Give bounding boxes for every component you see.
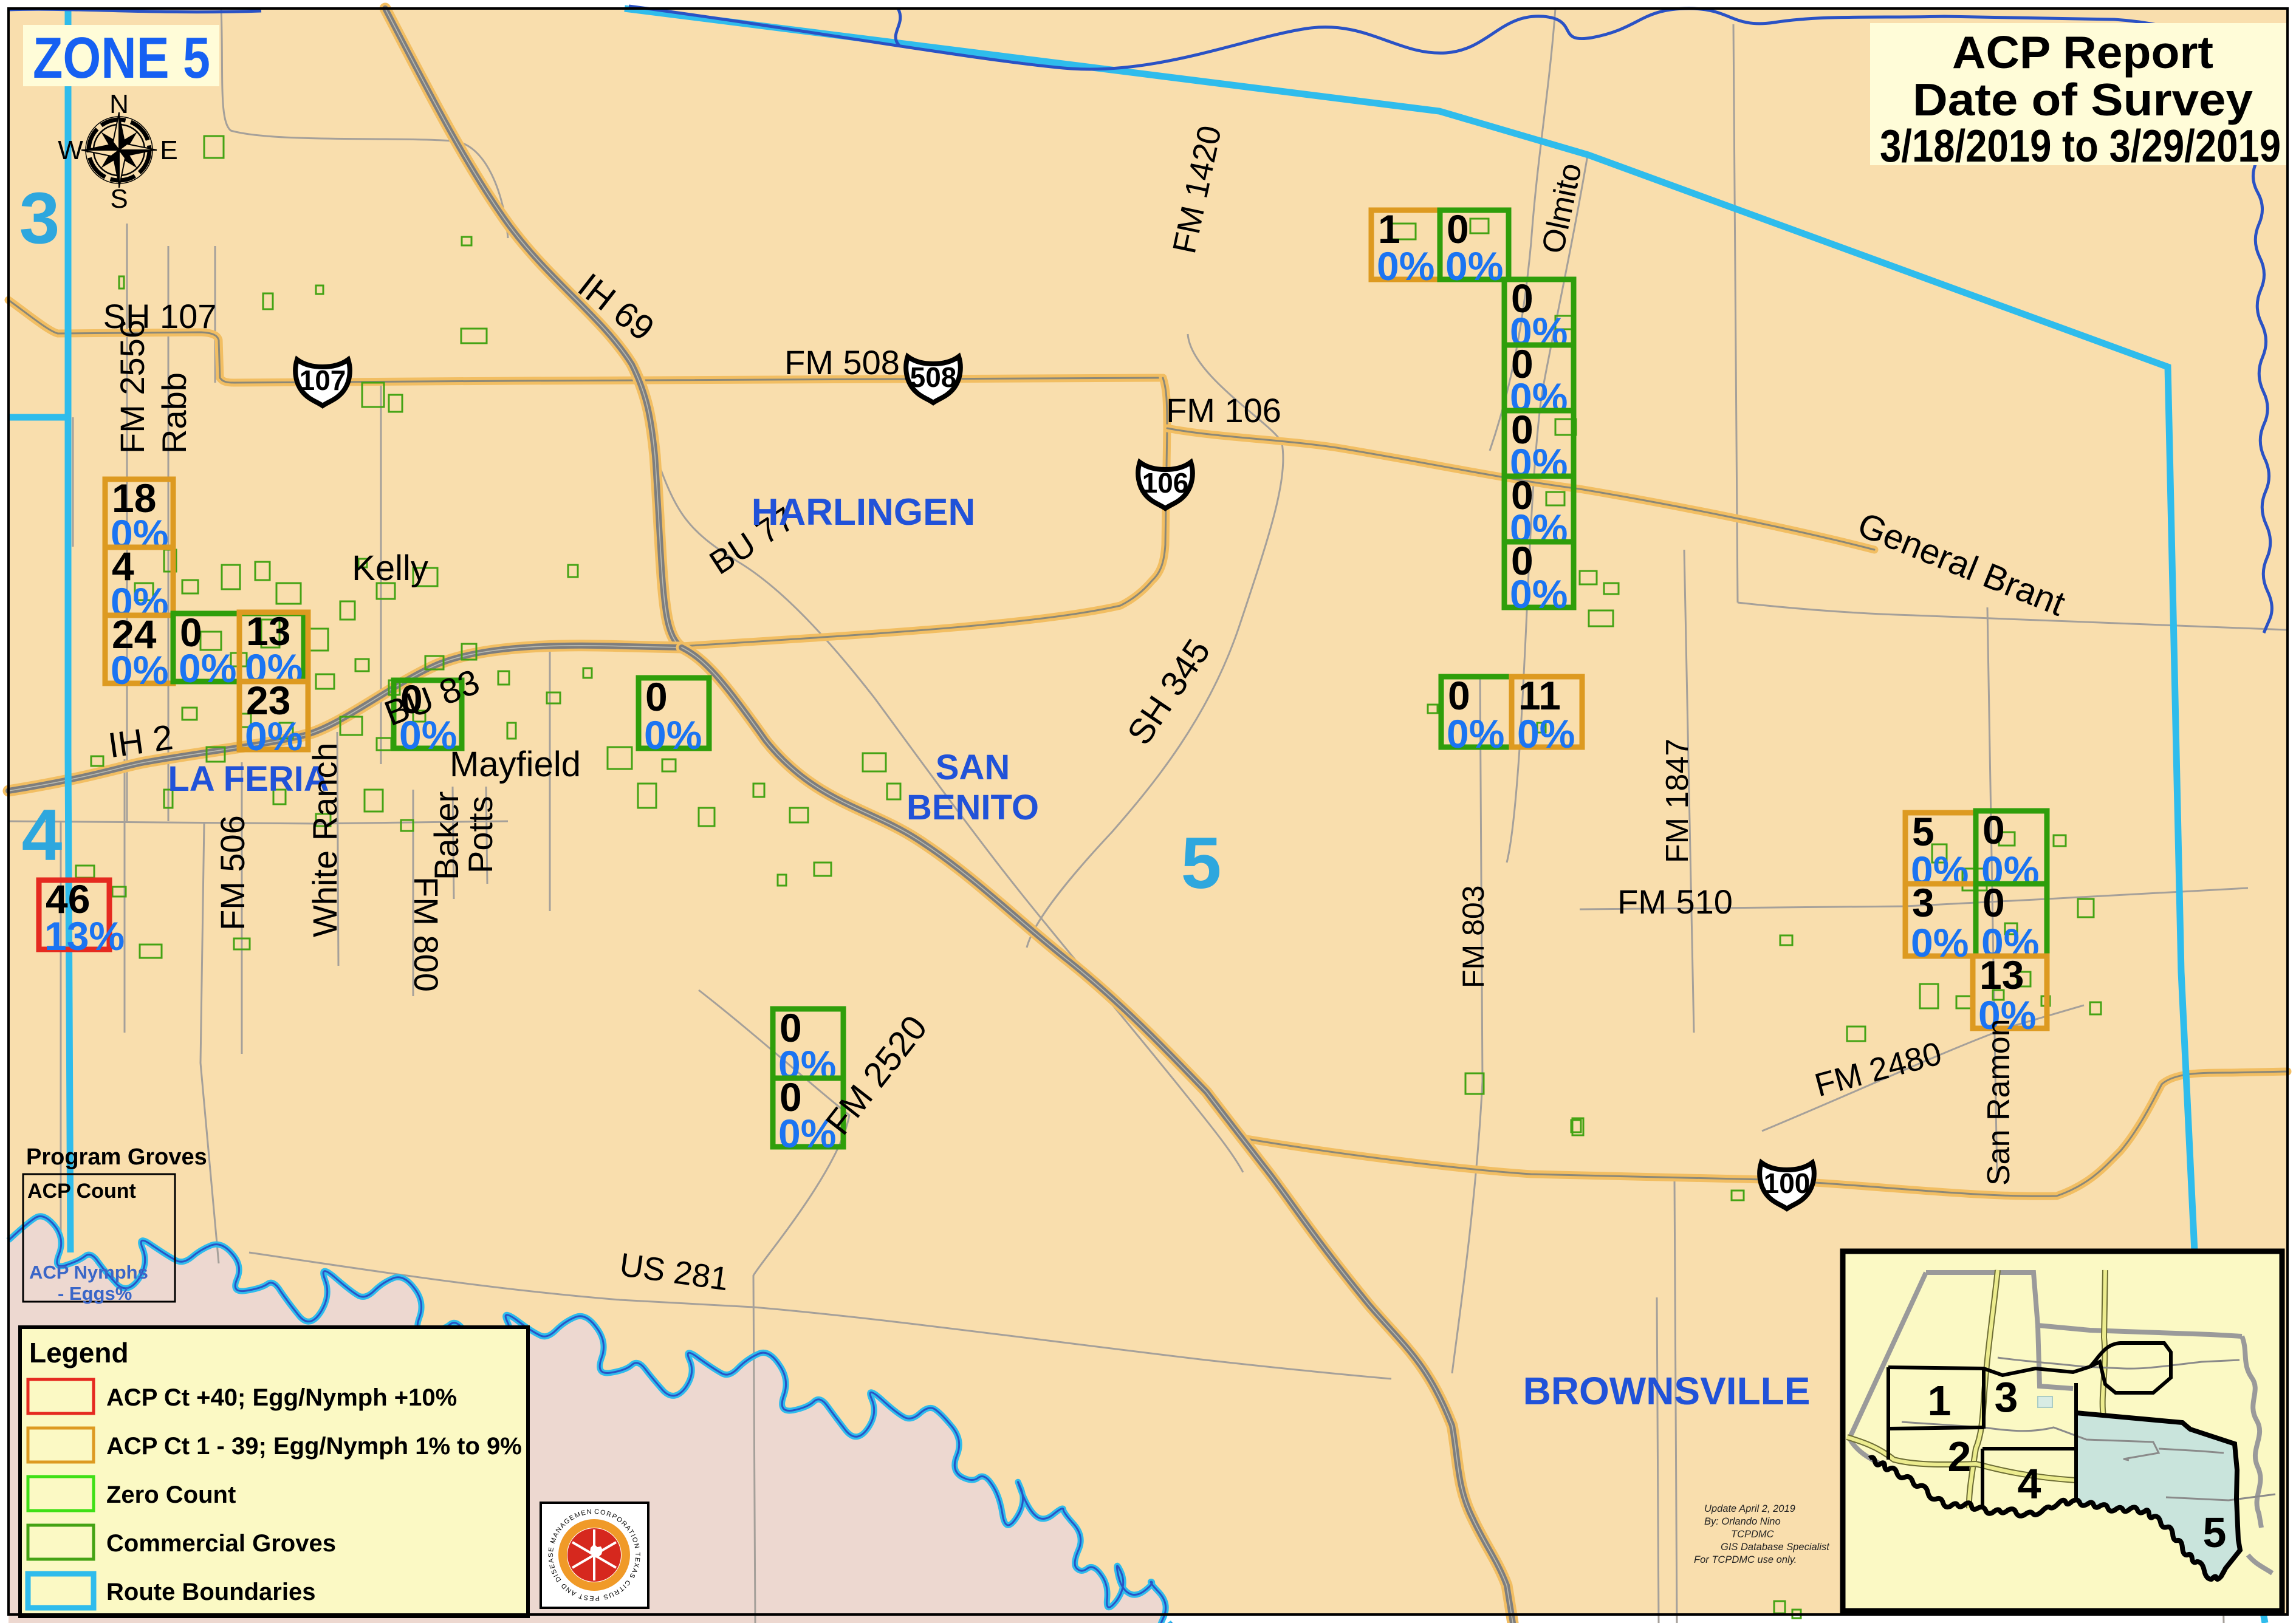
svg-text:FM 510: FM 510 xyxy=(1617,883,1733,921)
svg-text:0: 0 xyxy=(1982,880,2005,925)
svg-text:E: E xyxy=(160,135,177,165)
svg-text:HARLINGEN: HARLINGEN xyxy=(752,491,976,533)
svg-text:ZONE 5: ZONE 5 xyxy=(33,26,210,91)
svg-text:Route Boundaries: Route Boundaries xyxy=(106,1579,315,1605)
svg-text:0%: 0% xyxy=(1445,244,1503,289)
svg-text:0%: 0% xyxy=(644,712,702,757)
svg-text:FM 506: FM 506 xyxy=(213,815,252,931)
svg-text:4: 4 xyxy=(22,794,63,876)
svg-text:Baker: Baker xyxy=(427,791,465,880)
svg-text:3: 3 xyxy=(1912,880,1934,925)
svg-text:0: 0 xyxy=(1982,807,2005,852)
svg-text:Program Groves: Program Groves xyxy=(26,1144,207,1170)
svg-text:Zero Count: Zero Count xyxy=(106,1481,236,1508)
svg-text:N: N xyxy=(109,89,129,119)
svg-text:5: 5 xyxy=(2203,1509,2227,1556)
svg-text:Update April 2, 2019: Update April 2, 2019 xyxy=(1704,1503,1795,1514)
svg-text:ACP Report: ACP Report xyxy=(1952,27,2213,78)
svg-text:GIS Database Specialist: GIS Database Specialist xyxy=(1721,1542,1830,1553)
svg-text:0%: 0% xyxy=(111,647,168,692)
svg-text:3: 3 xyxy=(1995,1373,2018,1421)
svg-text:3: 3 xyxy=(19,177,60,259)
svg-text:0%: 0% xyxy=(1510,572,1568,617)
svg-text:For TCPDMC use only.: For TCPDMC use only. xyxy=(1694,1554,1797,1565)
svg-text:5: 5 xyxy=(1912,809,1934,854)
svg-text:0%: 0% xyxy=(1377,244,1434,289)
svg-text:Rabb: Rabb xyxy=(155,372,193,454)
svg-text:107: 107 xyxy=(300,364,346,396)
svg-text:LA FERIA: LA FERIA xyxy=(168,759,329,799)
svg-text:ACP Nymphs: ACP Nymphs xyxy=(29,1262,148,1283)
svg-text:By: Orlando Nino: By: Orlando Nino xyxy=(1704,1516,1781,1527)
svg-text:ACP Count: ACP Count xyxy=(27,1180,136,1203)
svg-text:1: 1 xyxy=(1928,1377,1952,1424)
svg-text:S: S xyxy=(110,184,128,214)
svg-text:0%: 0% xyxy=(1911,920,1969,965)
svg-text:Legend: Legend xyxy=(29,1337,129,1368)
svg-text:ACP Ct 1 - 39; Egg/Nymph 1% to: ACP Ct 1 - 39; Egg/Nymph 1% to 9% xyxy=(106,1433,522,1460)
svg-text:FM 800: FM 800 xyxy=(407,876,445,992)
svg-text:W: W xyxy=(58,135,83,165)
svg-text:FM 106: FM 106 xyxy=(1166,391,1281,429)
svg-text:- Eggs%: - Eggs% xyxy=(58,1283,132,1304)
svg-text:106: 106 xyxy=(1142,467,1189,499)
svg-text:FM 508: FM 508 xyxy=(784,343,900,381)
svg-text:BENITO: BENITO xyxy=(906,788,1039,827)
svg-text:Kelly: Kelly xyxy=(352,548,428,588)
svg-text:3/18/2019 to 3/29/2019: 3/18/2019 to 3/29/2019 xyxy=(1880,120,2281,171)
svg-text:FM 2556: FM 2556 xyxy=(113,319,151,454)
svg-text:BROWNSVILLE: BROWNSVILLE xyxy=(1523,1369,1811,1413)
svg-text:4: 4 xyxy=(2018,1460,2041,1508)
svg-text:Potts: Potts xyxy=(461,796,499,873)
svg-text:5: 5 xyxy=(1181,822,1222,904)
svg-text:508: 508 xyxy=(910,361,957,393)
svg-text:Date of Survey: Date of Survey xyxy=(1913,74,2253,125)
svg-text:0%: 0% xyxy=(1517,711,1575,756)
svg-text:FM 803: FM 803 xyxy=(1456,885,1490,988)
svg-text:13: 13 xyxy=(1979,952,2024,997)
svg-text:White Ranch: White Ranch xyxy=(306,742,344,937)
svg-text:San Ramon: San Ramon xyxy=(1981,1019,2017,1186)
svg-text:13%: 13% xyxy=(44,914,125,958)
svg-text:0%: 0% xyxy=(1447,711,1504,756)
svg-text:0%: 0% xyxy=(245,714,303,759)
svg-text:Commercial Groves: Commercial Groves xyxy=(106,1530,336,1557)
svg-text:100: 100 xyxy=(1764,1167,1811,1199)
svg-text:Mayfield: Mayfield xyxy=(450,745,581,784)
svg-text:SAN: SAN xyxy=(936,748,1010,787)
svg-text:0%: 0% xyxy=(179,646,236,691)
svg-text:ACP Ct +40; Egg/Nymph +10%: ACP Ct +40; Egg/Nymph +10% xyxy=(106,1384,457,1411)
svg-text:2: 2 xyxy=(1948,1433,1972,1480)
svg-text:TCPDMC: TCPDMC xyxy=(1731,1529,1774,1540)
svg-text:FM 1847: FM 1847 xyxy=(1660,739,1695,863)
